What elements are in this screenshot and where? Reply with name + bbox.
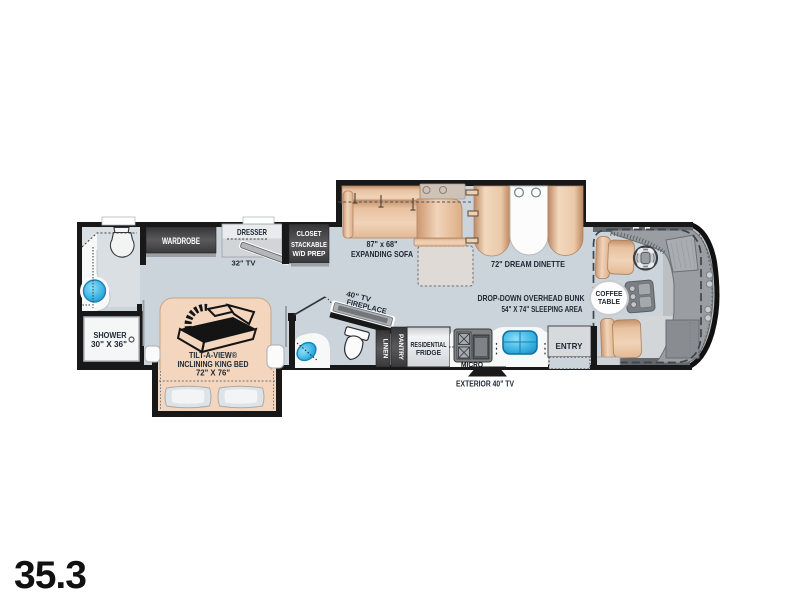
svg-text:CLOSET: CLOSET bbox=[297, 229, 323, 238]
svg-text:W/D PREP: W/D PREP bbox=[293, 249, 326, 258]
svg-text:TILT-A-VIEW®: TILT-A-VIEW® bbox=[189, 351, 237, 360]
svg-text:PANTRY: PANTRY bbox=[397, 334, 404, 361]
svg-text:72" DREAM DINETTE: 72" DREAM DINETTE bbox=[491, 259, 565, 269]
svg-text:35.3: 35.3 bbox=[14, 554, 86, 597]
svg-text:DROP-DOWN OVERHEAD BUNK: DROP-DOWN OVERHEAD BUNK bbox=[478, 293, 586, 303]
svg-text:FRIDGE: FRIDGE bbox=[416, 350, 441, 357]
svg-text:STACKABLE: STACKABLE bbox=[291, 240, 327, 249]
svg-text:TABLE: TABLE bbox=[598, 299, 620, 306]
svg-text:SHOWER: SHOWER bbox=[94, 331, 127, 340]
svg-text:DRESSER: DRESSER bbox=[237, 227, 267, 237]
svg-text:54" X 74" SLEEPING AREA: 54" X 74" SLEEPING AREA bbox=[502, 305, 583, 314]
svg-text:ENTRY: ENTRY bbox=[556, 341, 583, 351]
svg-text:87" x 68": 87" x 68" bbox=[367, 239, 398, 249]
svg-text:72" X 76": 72" X 76" bbox=[196, 369, 230, 378]
svg-text:LINEN: LINEN bbox=[382, 339, 389, 359]
svg-text:RESIDENTIAL: RESIDENTIAL bbox=[411, 342, 448, 349]
svg-text:COFFEE: COFFEE bbox=[596, 291, 623, 298]
svg-text:WARDROBE: WARDROBE bbox=[162, 236, 200, 246]
svg-text:EXTERIOR 40" TV: EXTERIOR 40" TV bbox=[456, 380, 515, 389]
svg-text:EXPANDING SOFA: EXPANDING SOFA bbox=[351, 249, 413, 259]
svg-text:30" X 36": 30" X 36" bbox=[91, 340, 127, 349]
svg-text:32" TV: 32" TV bbox=[232, 259, 256, 268]
